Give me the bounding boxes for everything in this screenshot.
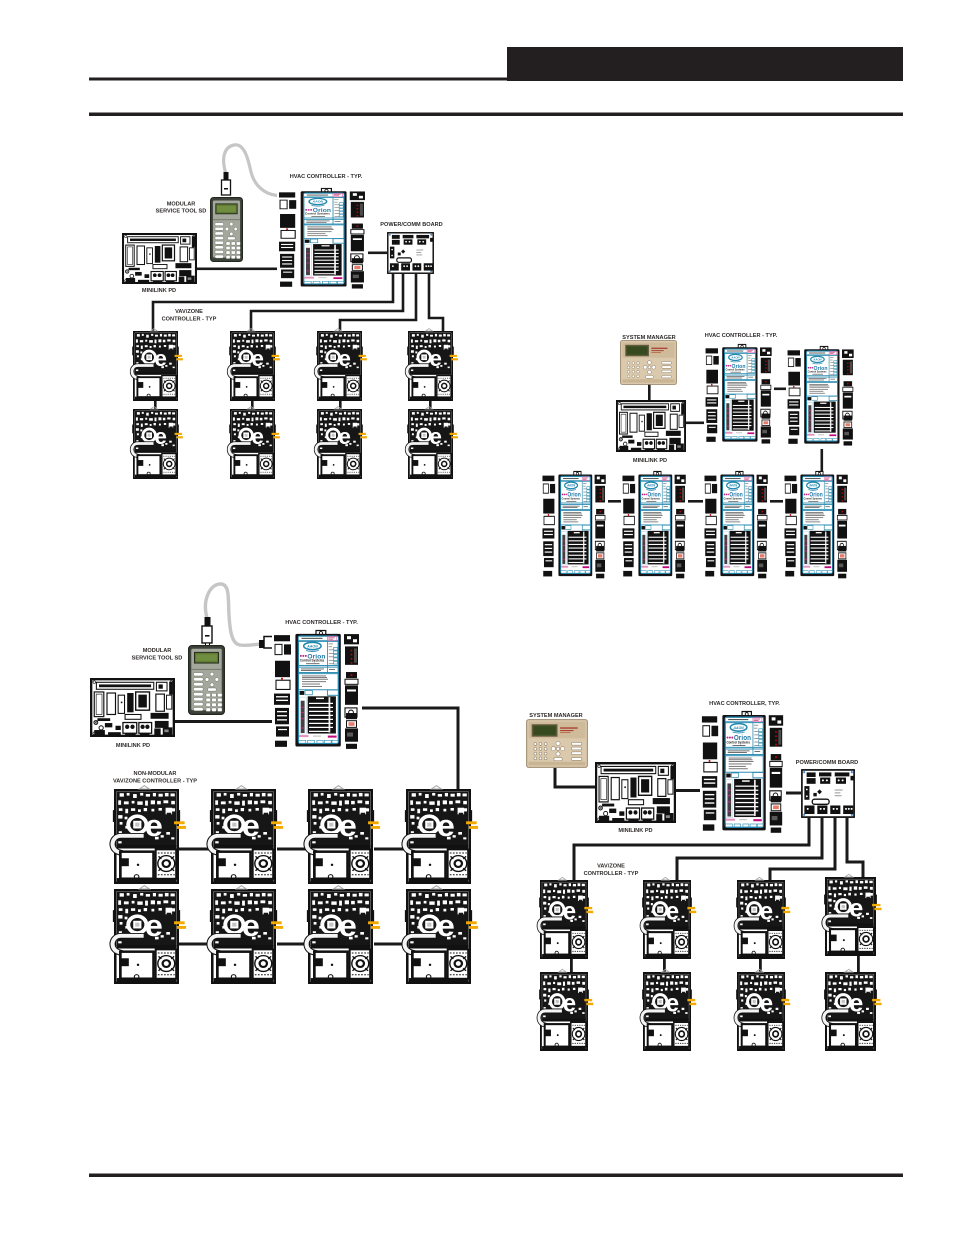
- svg-text:HVAC CONTROLLER - TYP.: HVAC CONTROLLER - TYP.: [290, 174, 363, 180]
- svg-text:HVAC CONTROLLER - TYP.: HVAC CONTROLLER - TYP.: [705, 333, 778, 339]
- svg-text:HVAC CONTROLLER - TYP.: HVAC CONTROLLER - TYP.: [285, 620, 358, 626]
- svg-text:MINILINK PD: MINILINK PD: [142, 288, 176, 294]
- svg-text:POWER/COMM BOARD: POWER/COMM BOARD: [380, 222, 442, 228]
- svg-text:VAV/ZONE: VAV/ZONE: [175, 309, 203, 315]
- svg-text:MODULAR: MODULAR: [167, 202, 196, 208]
- svg-text:VAV/ZONE: VAV/ZONE: [597, 864, 625, 870]
- svg-text:NON-MODULAR: NON-MODULAR: [134, 771, 177, 777]
- svg-text:MODULAR: MODULAR: [143, 648, 172, 654]
- svg-text:CONTROLLER - TYP: CONTROLLER - TYP: [162, 317, 217, 323]
- svg-text:MINILINK PD: MINILINK PD: [116, 743, 150, 749]
- svg-text:SYSTEM MANAGER: SYSTEM MANAGER: [529, 713, 582, 719]
- svg-text:VAV/ZONE CONTROLLER - TYP: VAV/ZONE CONTROLLER - TYP: [113, 779, 197, 785]
- svg-text:CONTROLLER - TYP: CONTROLLER - TYP: [584, 871, 639, 877]
- svg-text:HVAC CONTROLLER, TYP.: HVAC CONTROLLER, TYP.: [709, 701, 780, 707]
- svg-text:POWER/COMM BOARD: POWER/COMM BOARD: [796, 760, 858, 766]
- svg-text:SERVICE TOOL SD: SERVICE TOOL SD: [156, 209, 207, 215]
- svg-text:MINILINK PD: MINILINK PD: [633, 458, 667, 464]
- svg-text:SERVICE TOOL SD: SERVICE TOOL SD: [132, 656, 183, 662]
- svg-text:MINILINK PD: MINILINK PD: [618, 828, 652, 834]
